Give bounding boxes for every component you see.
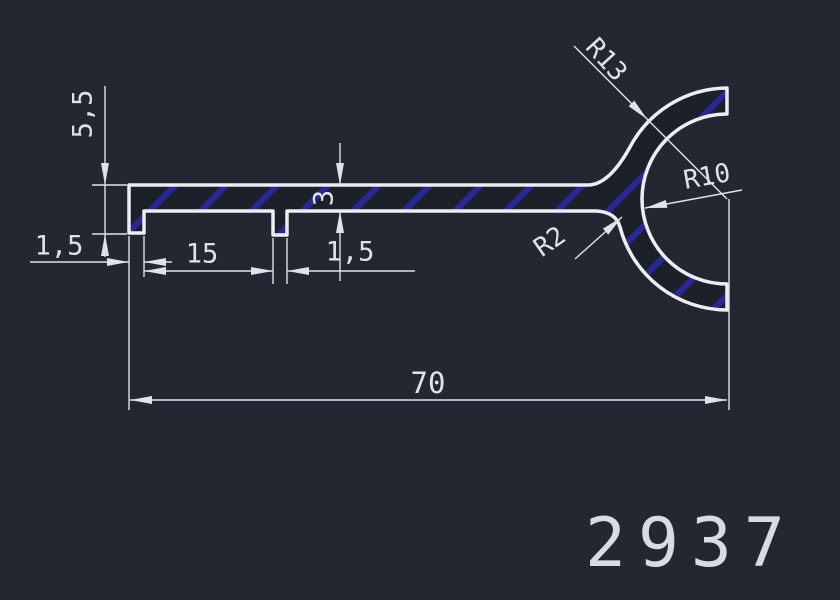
dim-15right-label: 1,5 xyxy=(326,237,375,268)
part-number: 2937 xyxy=(585,504,797,583)
dim-lip-spacing: 15 xyxy=(144,239,273,276)
dim-3-label: 3 xyxy=(309,190,340,206)
arrowhead xyxy=(101,234,109,256)
arrowhead xyxy=(107,258,129,266)
profile-drawing: 5,5 1,5 15 1,5 3 70 xyxy=(0,0,840,600)
dim-inner-radius: R10 xyxy=(644,158,742,212)
arrowhead xyxy=(144,267,166,275)
dim-fillet-radius: R2 xyxy=(529,214,625,263)
arrowhead xyxy=(336,211,344,233)
cad-canvas: 5,5 1,5 15 1,5 3 70 xyxy=(0,0,840,600)
dim-lip-width-right: 1,5 xyxy=(273,237,415,285)
arrowhead xyxy=(130,396,152,404)
profile-path xyxy=(129,88,727,310)
arrowhead xyxy=(101,163,109,185)
arrowhead xyxy=(287,267,309,275)
arrowhead xyxy=(629,101,650,122)
arrowhead xyxy=(705,396,727,404)
arrowhead xyxy=(251,267,273,275)
dim-lip-width-left: 1,5 xyxy=(30,231,172,411)
dim-r2-label: R2 xyxy=(529,221,572,264)
arrowhead xyxy=(644,200,667,212)
dim-15-label: 15 xyxy=(186,239,219,270)
dim-15left-label: 1,5 xyxy=(35,231,84,262)
dim-r13-label: R13 xyxy=(579,33,633,88)
arrowhead xyxy=(336,163,344,185)
dim-70-label: 70 xyxy=(411,366,446,400)
dim-r10-label: R10 xyxy=(681,158,732,196)
dim-55-label: 5,5 xyxy=(68,90,99,139)
profile-section xyxy=(129,88,727,310)
arrowhead xyxy=(144,258,166,266)
